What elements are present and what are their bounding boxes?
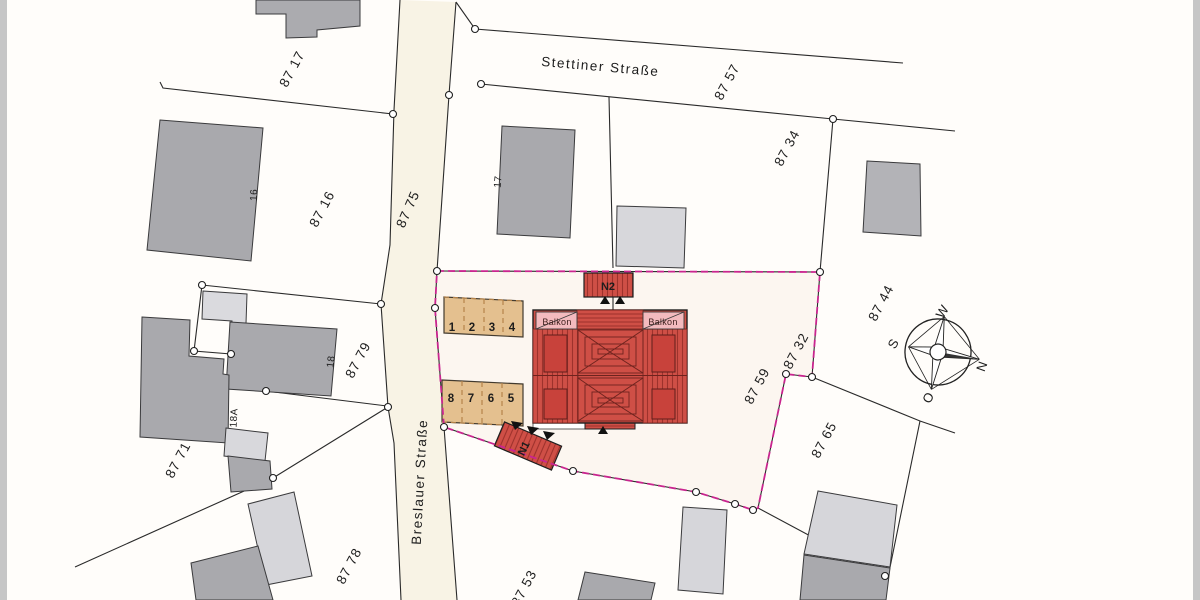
scan-edge-left xyxy=(0,0,7,600)
parcel-label-87-53: 87 53 xyxy=(508,567,539,600)
building-house-18 xyxy=(226,322,337,396)
stall-number-1: 1 xyxy=(449,322,456,334)
n2-label: N2 xyxy=(601,281,615,293)
roof-north-band xyxy=(577,310,643,329)
site-plan-page: Stettiner Straße Breslauer Straße 87 17 … xyxy=(0,0,1200,600)
parcel-label-87-34: 87 34 xyxy=(771,127,802,168)
building-parcel-8717 xyxy=(256,0,360,38)
stall-number-3: 3 xyxy=(489,322,495,334)
street-label-stettiner: Stettiner Straße xyxy=(541,54,660,79)
parcel-label-87-65: 87 65 xyxy=(808,419,839,460)
stall-number-4: 4 xyxy=(509,322,516,334)
building-house-16 xyxy=(147,120,263,261)
parcel-label-87-17: 87 17 xyxy=(276,48,307,89)
parcel-label-87-79: 87 79 xyxy=(342,339,373,380)
balcony-east-label: Balkon xyxy=(648,317,677,327)
building-parcel-8765-light xyxy=(804,491,897,567)
compass-label-south: S xyxy=(884,336,901,351)
building-parcel-8753 xyxy=(678,507,727,594)
stall-number-2: 2 xyxy=(469,322,475,334)
parcel-label-87-16: 87 16 xyxy=(306,188,337,229)
parcel-label-87-78: 87 78 xyxy=(333,545,364,586)
building-house-18a-dark xyxy=(228,456,272,492)
compass-hub xyxy=(929,343,948,362)
stall-number-5: 5 xyxy=(508,393,515,405)
parcel-label-87-71: 87 71 xyxy=(162,439,193,480)
stall-number-8: 8 xyxy=(448,393,455,405)
building-parcel-8778-dark xyxy=(191,546,273,600)
building-light-center xyxy=(616,206,686,268)
stall-number-7: 7 xyxy=(468,393,474,405)
house-number-16: 16 xyxy=(249,189,260,202)
house-number-17: 17 xyxy=(493,175,505,188)
stall-number-6: 6 xyxy=(488,393,494,405)
site-plan-drawing: Stettiner Straße Breslauer Straße 87 17 … xyxy=(0,0,1200,600)
building-parcel-8734 xyxy=(863,161,921,236)
building-house-17 xyxy=(497,126,575,238)
balcony-west-label: Balkon xyxy=(542,317,571,327)
building-bottom-center xyxy=(578,572,655,600)
house-number-18a: 18A xyxy=(229,408,241,428)
scan-edge-right xyxy=(1193,0,1200,600)
house-number-18: 18 xyxy=(325,355,337,368)
building-terrace xyxy=(533,423,587,429)
planned-building xyxy=(533,310,687,429)
parcel-label-87-44: 87 44 xyxy=(865,282,896,323)
compass-label-west: W xyxy=(933,302,953,321)
stettiner-edges xyxy=(456,2,955,131)
compass-rose: W S O N xyxy=(884,302,990,406)
parcel-label-87-57: 87 57 xyxy=(711,61,742,102)
compass-label-north: N xyxy=(973,359,990,373)
compass-label-east: O xyxy=(919,390,937,406)
building-parcel-8771 xyxy=(140,317,229,443)
